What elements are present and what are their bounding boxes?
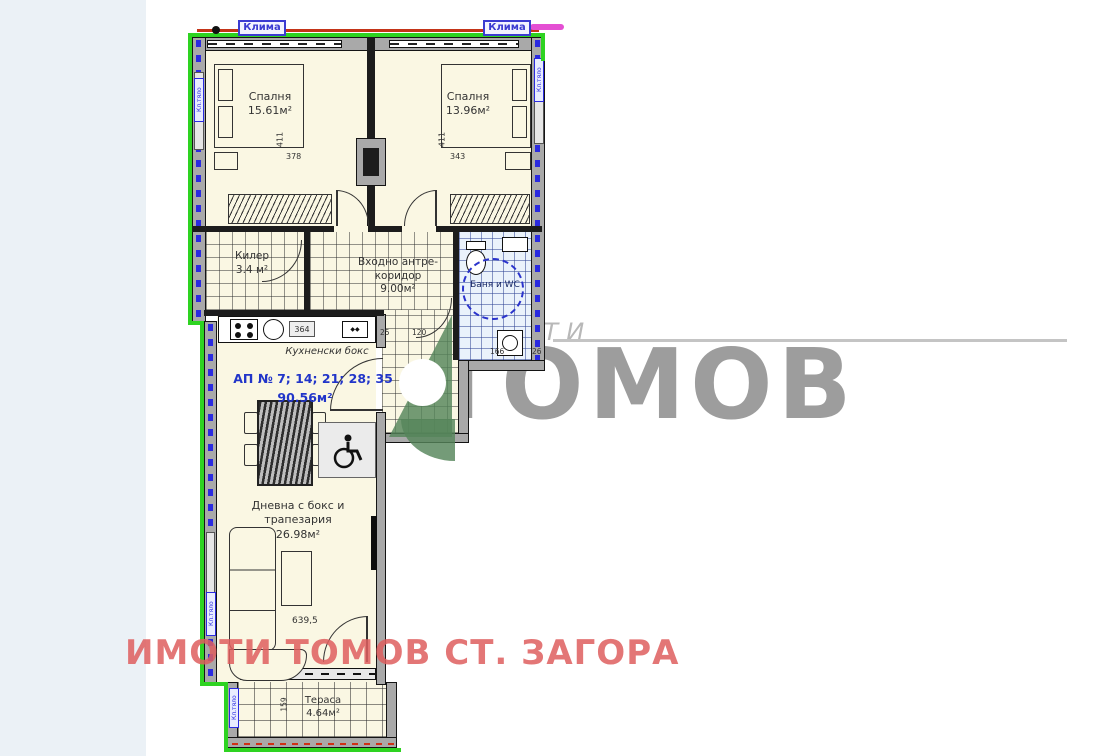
stove-burner <box>235 323 241 329</box>
marker-dot-left <box>212 26 220 34</box>
hall-name-2: коридор <box>342 270 454 284</box>
kitchen-appliance: ◆◆ <box>342 321 368 338</box>
wardrobe1 <box>228 194 332 224</box>
wall-between-bedrooms <box>367 37 375 226</box>
door-gap-bedroom2 <box>402 226 436 232</box>
door-leaf-bedroom1 <box>336 190 338 226</box>
window-top-left <box>207 40 342 48</box>
coffee-table <box>281 551 312 606</box>
bedroom2-label: Спалня 13.96м² <box>428 90 508 119</box>
wheelchair-icon <box>328 431 368 471</box>
bed2-pillow-2 <box>512 106 527 138</box>
door-leaf-bedroom2 <box>435 190 437 226</box>
bedroom1-label: Спалня 15.61м² <box>230 90 310 119</box>
unit-label-living: Кл.тяло <box>206 592 216 636</box>
terrace-red-dashes <box>232 743 394 745</box>
dim-bedroom1-width: 378 <box>286 152 301 161</box>
bath-label: Баня и WC <box>459 280 531 290</box>
floorplan-screenshot: { "plan": { "klima_label": "Клима", "uni… <box>0 0 1115 756</box>
outline-left-mid <box>200 321 204 686</box>
dining-chair <box>244 444 258 466</box>
unit-label-bedroom2: Кл.тяло <box>534 58 544 102</box>
bedroom1-area: 15.61м² <box>230 104 310 118</box>
wall-terrace-right <box>386 682 397 742</box>
bath-sink <box>502 237 528 252</box>
klima-label-right: Клима <box>483 20 531 36</box>
living-name: Дневна с бокс и трапезария <box>218 499 378 528</box>
closet-label: Килер 3.4 м² <box>214 250 290 277</box>
wall-hall-right <box>458 360 469 442</box>
nightstand2 <box>505 152 531 170</box>
accessibility-box <box>318 422 376 478</box>
toilet-tank <box>466 241 486 250</box>
dining-table <box>257 400 313 486</box>
door-gap-bedroom1 <box>334 226 368 232</box>
outline-right-top <box>541 33 545 61</box>
dim-hall-1: 25 <box>380 328 390 337</box>
bed2-pillow-1 <box>512 69 527 101</box>
window-top-right <box>389 40 519 48</box>
dim-bedroom2-depth: 411 <box>438 128 447 152</box>
wall-bath-bottom <box>458 360 545 371</box>
magenta-marker-line <box>530 24 564 30</box>
closet-area: 3.4 м² <box>214 264 290 278</box>
outline-bottom <box>224 748 401 752</box>
dim-kitchen-counter: 364 <box>289 321 315 337</box>
stove <box>230 319 258 340</box>
outline-left-upper <box>188 33 192 325</box>
stove-burner <box>247 323 253 329</box>
living-label: Дневна с бокс и трапезария 26.98м² <box>218 499 378 542</box>
hall-name-1: Входно антре- <box>342 256 454 270</box>
bedroom2-name: Спалня <box>428 90 508 104</box>
wardrobe2 <box>450 194 530 224</box>
outline-left-lower <box>224 682 228 752</box>
dim-terrace-depth: 159 <box>280 693 289 717</box>
nightstand1 <box>214 152 238 170</box>
hall-label: Входно антре- коридор 9.00м² <box>342 256 454 297</box>
dim-hall-2: 120 <box>412 328 426 337</box>
stove-burner <box>247 332 253 338</box>
dining-chair <box>244 412 258 434</box>
bedroom2-area: 13.96м² <box>428 104 508 118</box>
hall-area: 9.00м² <box>342 283 454 297</box>
washer-drum <box>502 335 518 351</box>
klima-label-left: Клима <box>238 20 286 36</box>
dim-bedroom2-width: 343 <box>450 152 465 161</box>
closet-name: Килер <box>214 250 290 264</box>
unit-label-terrace: Кл.тяло <box>229 688 239 728</box>
bedroom1-name: Спалня <box>230 90 310 104</box>
door-leaf-hall-living <box>330 409 383 411</box>
wall-closet-divider <box>304 232 310 316</box>
apartment-total-area: 90.56м² <box>240 390 370 405</box>
kitchen-sink <box>263 319 284 340</box>
unit-label-bedroom1: Кл.тяло <box>194 78 204 122</box>
apartment-numbers: АП № 7; 14; 21; 28; 35 <box>228 371 398 386</box>
stove-burner <box>235 332 241 338</box>
dim-bath-2: 26 <box>532 347 542 356</box>
logo-circle <box>399 359 446 406</box>
dim-living-width: 639,5 <box>292 616 318 626</box>
dim-bath-width: 166 <box>490 347 504 356</box>
kitchen-label: Кухненски бокс <box>272 346 382 357</box>
logo-fan-shape <box>401 419 455 461</box>
living-area: 26.98м² <box>218 528 378 542</box>
watermark-footer: ИМОТИ ТОМОВ СТ. ЗАГОРА <box>125 633 679 673</box>
shaft-core <box>363 148 379 176</box>
dim-bedroom1-depth: 411 <box>276 128 285 152</box>
